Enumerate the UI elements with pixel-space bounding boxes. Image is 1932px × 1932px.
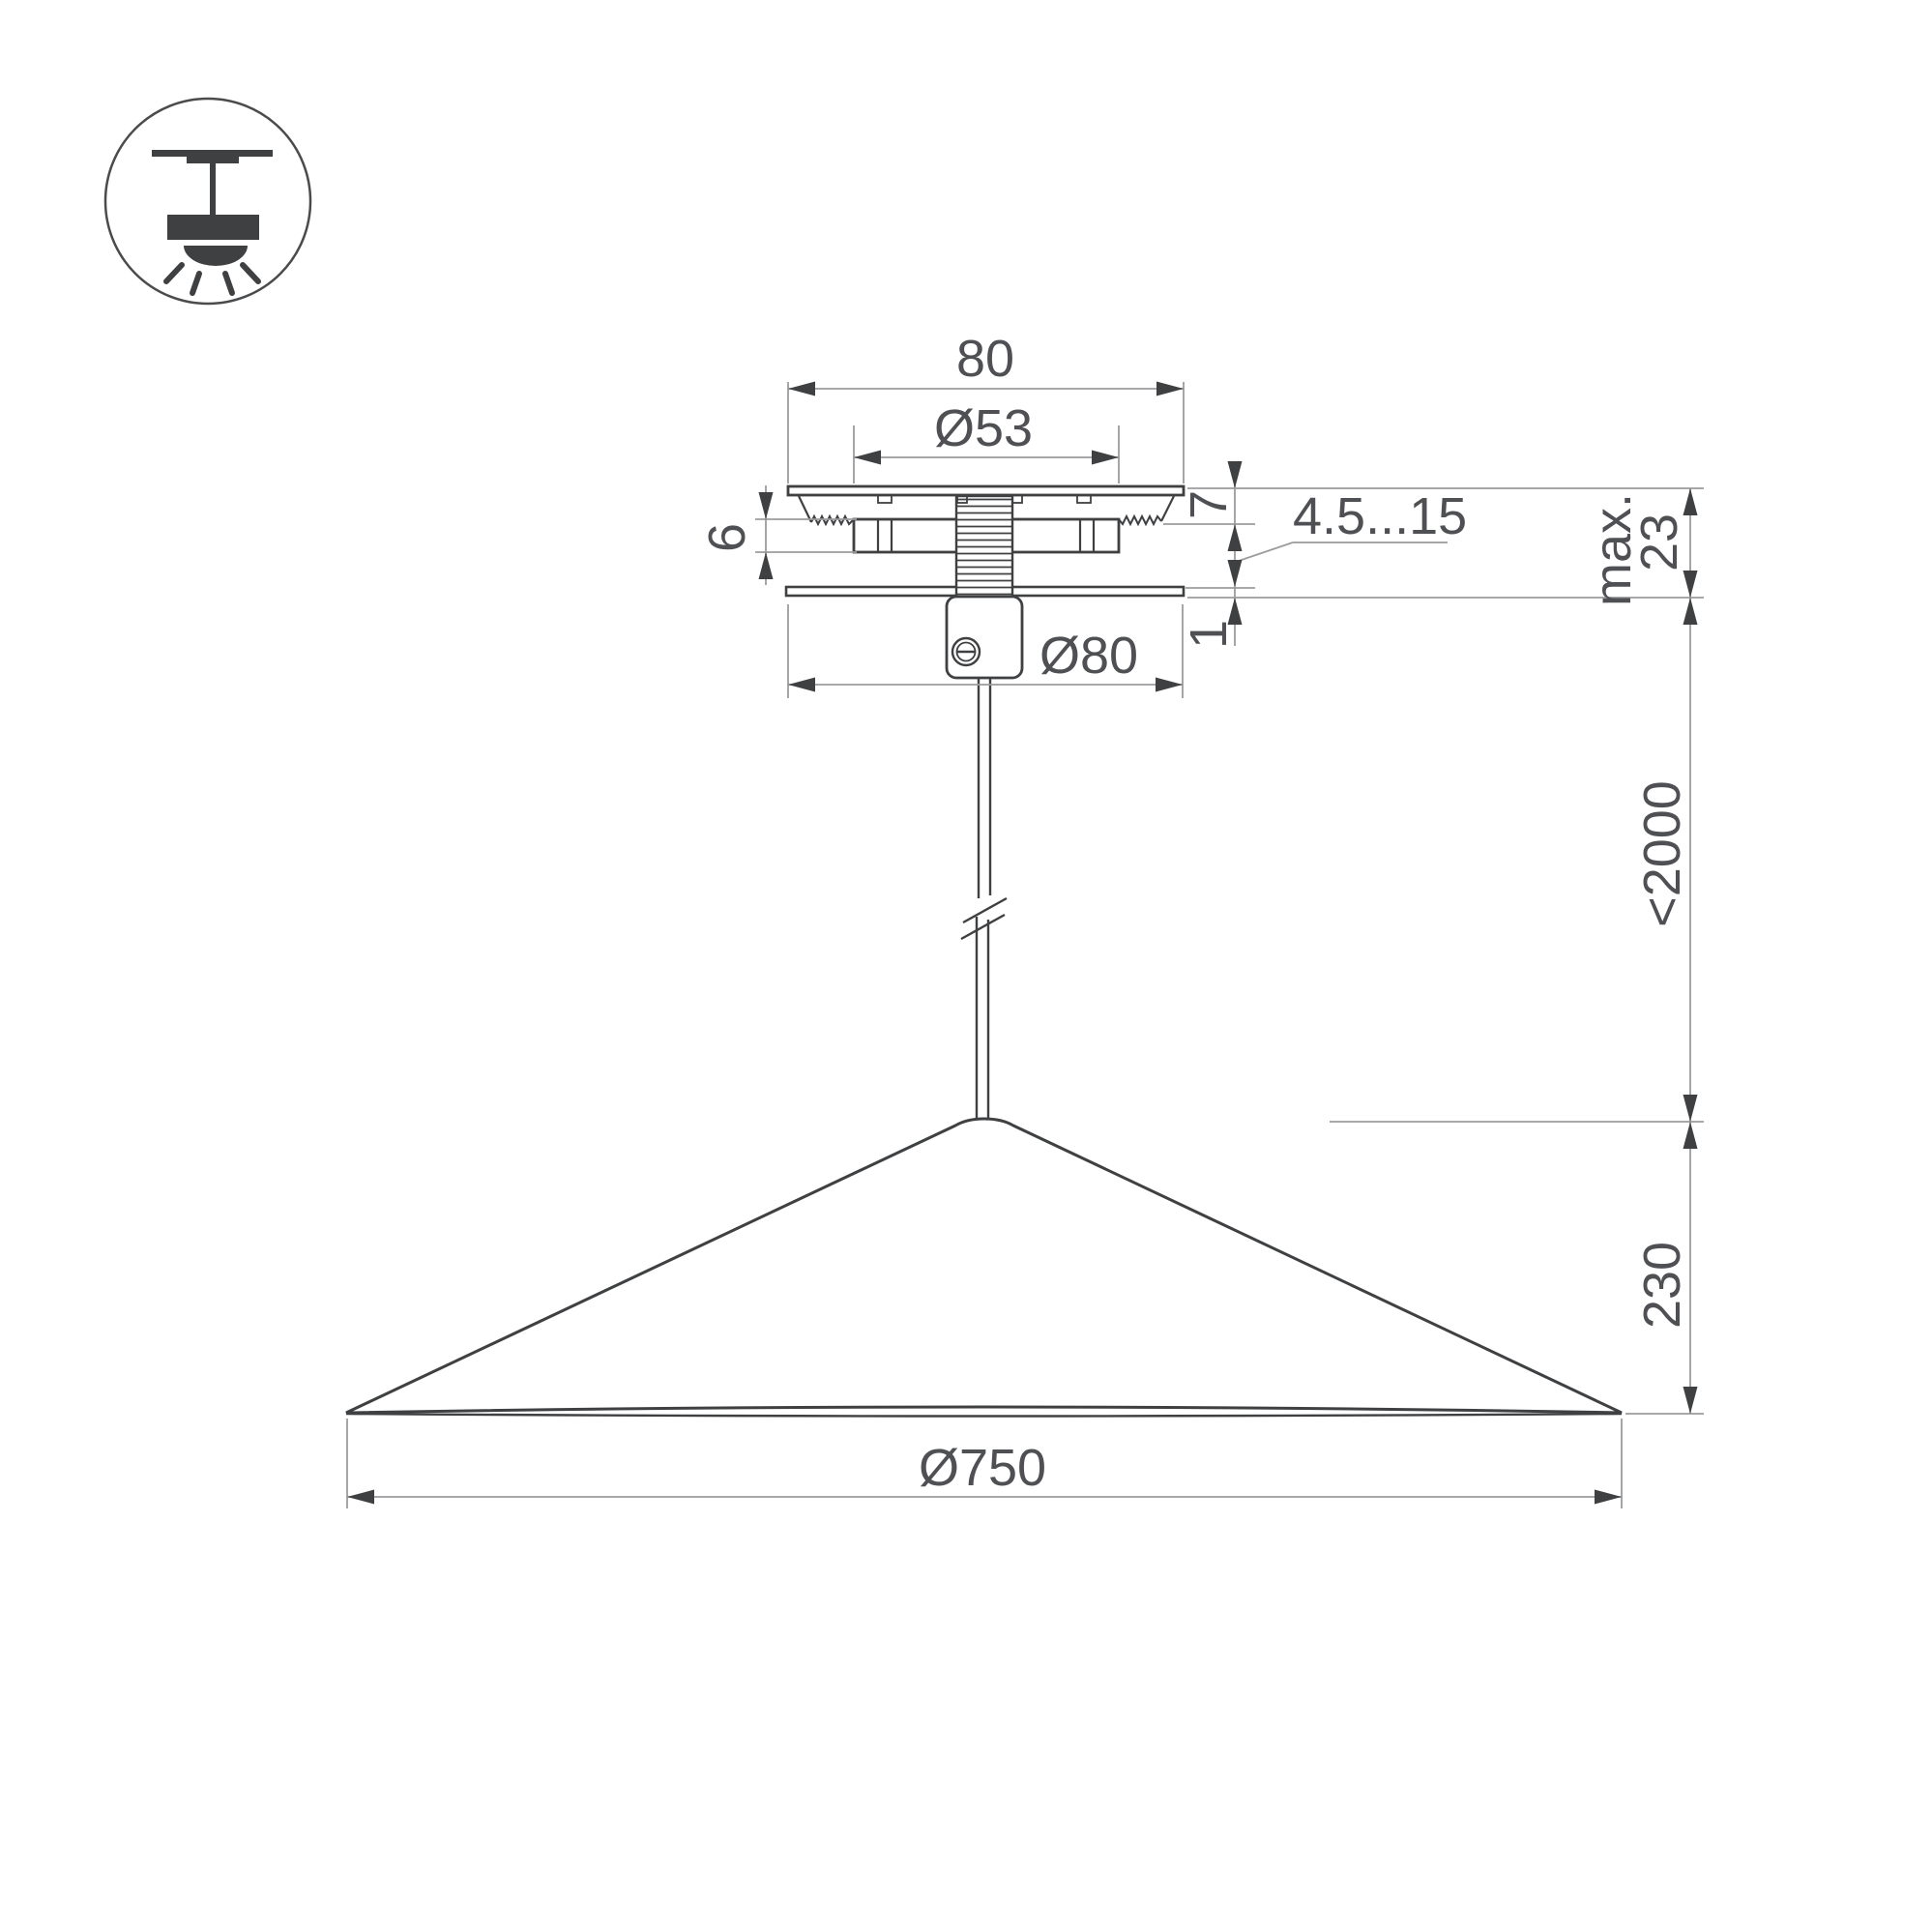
lamp-shade xyxy=(346,1119,1622,1417)
washer-right-serration xyxy=(1119,516,1161,524)
svg-text:max. 23: max. 23 xyxy=(1584,479,1688,606)
shade-rim-line xyxy=(346,1414,1622,1417)
threaded-rod xyxy=(956,496,1012,599)
dim-label-suspension-length: <2000 xyxy=(1633,780,1691,927)
dimension-bracket-height: 6 xyxy=(698,485,857,585)
canopy-top-plate xyxy=(788,486,1184,495)
cable-break-slash xyxy=(961,915,1005,939)
dim-label-recess-max: max. 23 xyxy=(1584,479,1688,606)
dim-label-mount-thickness-range: 4.5...15 xyxy=(1293,487,1467,545)
dim-label-plate-thickness: 1 xyxy=(1180,620,1238,649)
dim-label-recess-max-value: 23 xyxy=(1630,513,1688,571)
icon-circle xyxy=(105,99,310,304)
washer-left-diagonal xyxy=(799,496,811,522)
lamp-dimension-drawing-page: 80 Ø53 6 xyxy=(0,0,1932,1932)
dimension-stack-canopy: 7 4.5...15 1 xyxy=(1163,461,1467,649)
dim-label-bracket-height: 6 xyxy=(698,523,756,552)
icon-ceiling-bar xyxy=(152,150,273,157)
suspension-cable xyxy=(961,678,1007,1119)
dim-label-canopy-diameter: Ø80 xyxy=(1039,627,1138,685)
dim-label-shade-height: 230 xyxy=(1633,1242,1691,1329)
cord-grip-block xyxy=(947,597,1022,678)
ceiling-pendant-light-icon xyxy=(105,99,310,304)
icon-stem xyxy=(210,163,216,216)
shade-outline xyxy=(346,1119,1622,1413)
dimension-shade-diameter: Ø750 xyxy=(347,1419,1622,1508)
lamp-dimension-drawing: 80 Ø53 6 xyxy=(0,0,1932,1932)
washer-left-serration xyxy=(811,516,854,524)
icon-lamp-body xyxy=(167,215,259,240)
icon-lamp-dome xyxy=(184,246,248,266)
dim-label-canopy-top-height: 7 xyxy=(1180,490,1238,519)
dim-label-hole-diameter: Ø53 xyxy=(934,399,1033,457)
dimension-hole-diameter: Ø53 xyxy=(854,399,1119,483)
icon-mount-bar xyxy=(187,156,239,163)
cable-break-slash xyxy=(963,898,1007,922)
icon-light-rays xyxy=(166,265,258,293)
dim-label-canopy-width: 80 xyxy=(956,330,1014,388)
dim-label-shade-diameter: Ø750 xyxy=(919,1439,1046,1497)
washer-right-diagonal xyxy=(1161,496,1174,521)
